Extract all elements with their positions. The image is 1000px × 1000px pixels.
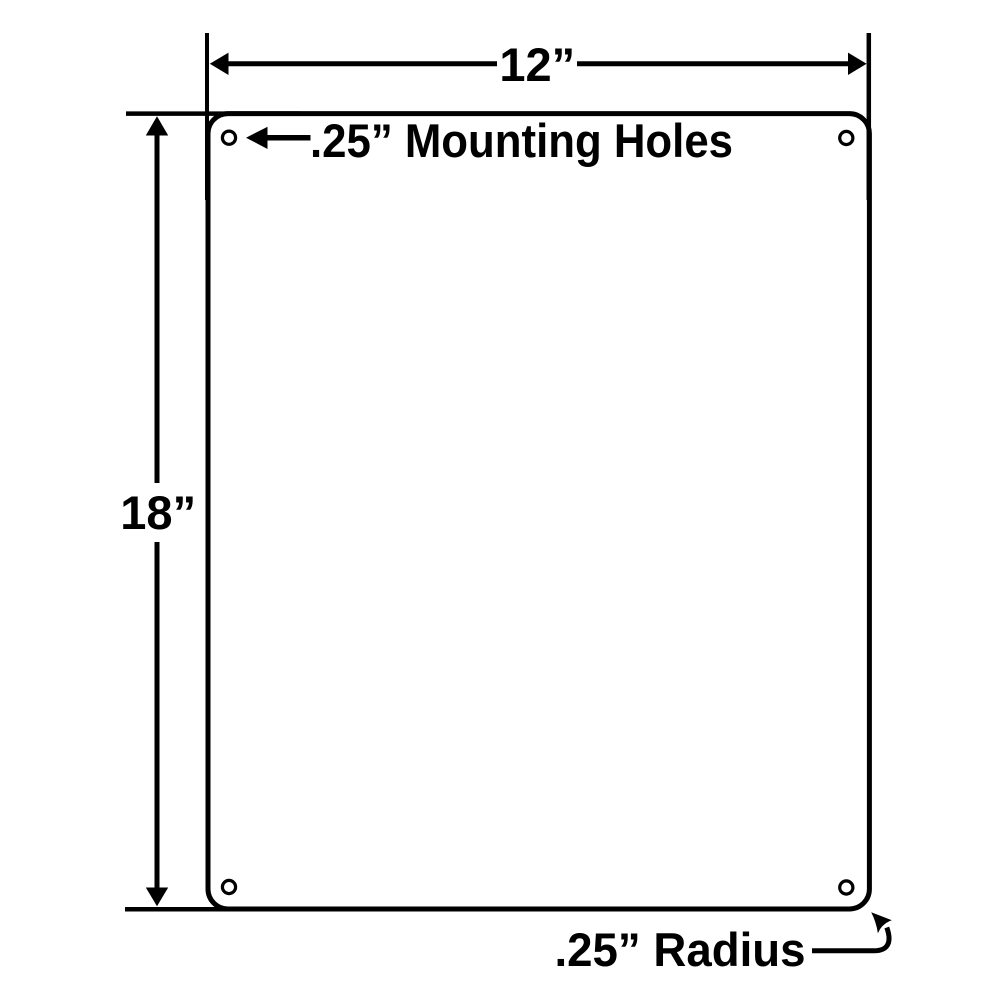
svg-text:12”: 12” [499, 38, 575, 91]
svg-text:18”: 18” [120, 486, 196, 539]
svg-text:.25” Radius: .25” Radius [555, 923, 806, 976]
svg-text:.25” Mounting Holes: .25” Mounting Holes [310, 114, 733, 167]
